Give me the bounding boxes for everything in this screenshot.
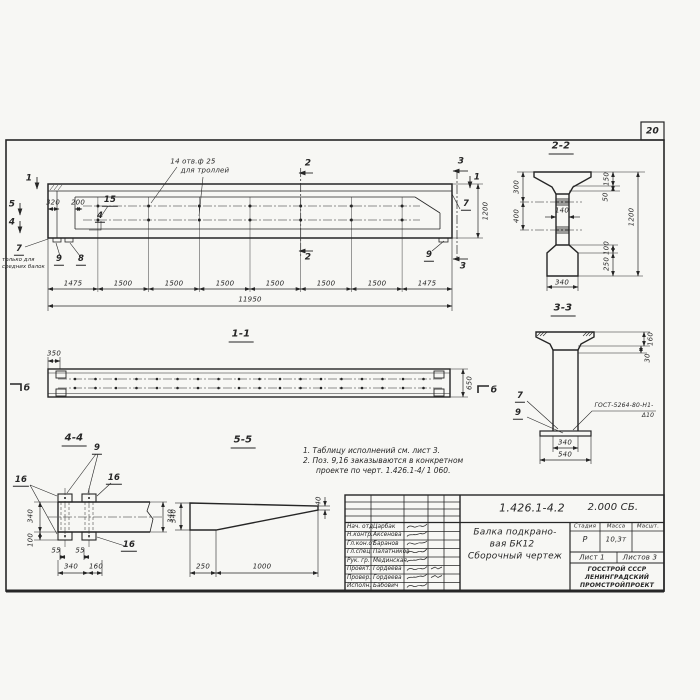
- sheet-value: Лист 1: [579, 554, 605, 561]
- dim-label: 160: [89, 564, 103, 571]
- dim-label: 1000: [253, 564, 272, 571]
- note-line3: проекте по черт. 1.426.1-4/ 1 060.: [316, 466, 450, 476]
- position-label-7: 7: [14, 245, 24, 256]
- dim-label: 55: [51, 548, 60, 555]
- dim-label: 1500: [317, 281, 336, 288]
- dim-label: 100: [28, 533, 35, 547]
- dim-label: 1200: [629, 208, 636, 227]
- column-header-stage: Стадия: [574, 524, 596, 530]
- dim-label: 200: [71, 200, 85, 207]
- dim-label: 50: [603, 192, 610, 201]
- detail-5-5-title: 5-5: [231, 436, 256, 449]
- dim-label: 340: [64, 564, 78, 571]
- dim-label: 55: [75, 548, 84, 555]
- section-mark-2-top: 2: [305, 160, 311, 169]
- note-line1: 1. Таблицу исполнений см. лист 3.: [303, 446, 440, 456]
- column-header-mass: Масса: [607, 524, 626, 530]
- dim-label: 250: [604, 257, 611, 271]
- mass-value: 10,3т: [606, 537, 627, 544]
- dim-label: 400: [514, 209, 521, 223]
- dim-label: 350: [47, 351, 61, 358]
- signature-role: Гл.спец.: [347, 550, 372, 556]
- weld-note-line2: Δ10: [642, 413, 654, 419]
- signature-role: Нач. отд: [347, 525, 373, 531]
- signature-role: Н.контр.: [347, 533, 373, 539]
- signature-name: Палатников: [373, 550, 410, 556]
- position-label-16: 16: [106, 474, 122, 485]
- signature-role: Рук. гр.: [347, 559, 370, 565]
- stage-value: Р: [582, 536, 587, 544]
- doc-number: 1.426.1-4.2: [499, 503, 565, 514]
- holes-note-line1: 14 отв.ф 25: [170, 159, 215, 166]
- position-label-9: 9: [513, 409, 523, 420]
- dim-label: 540: [558, 452, 572, 459]
- dim-label: 1500: [165, 281, 184, 288]
- dim-label: 1475: [64, 281, 83, 288]
- section-1-1-lines: [10, 357, 489, 397]
- view-mark-1-right: 1: [474, 174, 480, 183]
- signature-role: Гл.кон.от: [347, 542, 375, 548]
- signature-name: Гордеева: [373, 567, 402, 573]
- dim-label: 1500: [114, 281, 133, 288]
- section-2-2-title: 2-2: [549, 142, 574, 155]
- section-mark-b-left: б: [24, 385, 30, 394]
- view-mark-1-left: 1: [26, 175, 32, 184]
- note-line2: 2. Поз. 9,16 заказываются в конкретном: [303, 456, 463, 466]
- detail-4-4-lines: [30, 454, 167, 576]
- position-label-9: 9: [54, 255, 64, 266]
- signature-name: Царбак: [373, 525, 395, 531]
- section-3-3-title: 3-3: [551, 304, 576, 317]
- drawing-title-line3: Сборочный чертеж: [468, 553, 562, 562]
- dim-label: 1200: [483, 202, 490, 221]
- dim-label: 40: [316, 496, 323, 505]
- dim-label: 1500: [216, 281, 235, 288]
- org-line3: ПРОМСТРОЙПРОЕКТ: [580, 583, 654, 589]
- dim-label: 100: [604, 241, 611, 255]
- section-mark-b-right: б: [491, 387, 497, 396]
- doc-suffix: 2.000 СБ.: [588, 503, 639, 513]
- dim-label: 250: [196, 564, 210, 571]
- signature-role: Исполн.: [347, 584, 371, 590]
- dim-label: 140: [555, 208, 569, 215]
- position-label-8: 8: [76, 255, 86, 266]
- section-mark-3-top: 3: [458, 158, 464, 167]
- position-label-9: 9: [92, 444, 102, 455]
- section-3-3-lines: [527, 332, 656, 464]
- dim-label: 340: [171, 509, 178, 523]
- org-line2: ЛЕНИНГРАДСКИЙ: [585, 575, 649, 581]
- signature-scribbles: [407, 524, 442, 588]
- dim-label: 340: [555, 280, 569, 287]
- signature-role: Провер.: [347, 576, 371, 582]
- view-mark-4: 4: [9, 219, 15, 228]
- section-2-2-lines: [517, 172, 645, 291]
- org-line1: ГОССТРОЙ СССР: [588, 567, 647, 573]
- dim-label: 300: [514, 180, 521, 194]
- position-label-16: 16: [121, 541, 137, 552]
- dim-label: 650: [467, 376, 474, 390]
- position-label-9: 9: [424, 251, 434, 262]
- column-header-scale: Масшт.: [637, 524, 659, 530]
- signature-name: Мединская: [373, 559, 407, 565]
- detail-4-4-title: 4-4: [62, 434, 87, 447]
- main-view-lines: [20, 167, 483, 311]
- holes-note-line2: для троллей: [181, 168, 230, 175]
- signature-name: Бабович: [373, 584, 398, 590]
- drawing-title-line1: Балка подкрано-: [473, 529, 556, 538]
- dim-label: 150: [604, 172, 611, 186]
- dim-label: 320: [46, 200, 60, 207]
- dim-label: 160: [648, 332, 655, 346]
- position-label-4: 4: [95, 212, 105, 223]
- position-label-16: 16: [13, 476, 29, 487]
- dim-label: 1500: [368, 281, 387, 288]
- signature-role: Проект.: [347, 567, 371, 573]
- position-label-7: 7: [461, 200, 471, 211]
- weld-note-line1: ГОСТ-5264-80-Н1-: [594, 403, 653, 409]
- dim-label: 340: [28, 509, 35, 523]
- signature-name: Гордеева: [373, 576, 402, 582]
- sheets-value: Листов 3: [623, 554, 657, 561]
- view-mark-5: 5: [9, 201, 15, 210]
- drawing-title-line2: вая БК12: [490, 541, 535, 550]
- only-note-line2: средних балок: [2, 264, 45, 271]
- dim-label-total: 11950: [238, 297, 261, 304]
- dim-label: 1500: [266, 281, 285, 288]
- signature-name: Баранов: [373, 542, 399, 548]
- dim-label: 30: [645, 353, 652, 362]
- section-mark-2-bottom: 2: [305, 254, 311, 263]
- drawing-linework: [0, 0, 700, 700]
- sheet-number: 20: [646, 127, 659, 136]
- dim-label: 1475: [418, 281, 437, 288]
- section-1-1-title: 1-1: [229, 330, 254, 343]
- section-mark-3-bottom: 3: [460, 263, 466, 272]
- signature-name: Аксенова: [373, 533, 402, 539]
- sheet-frame: [6, 122, 664, 591]
- dim-label: 340: [558, 440, 572, 447]
- drawing-sheet: 20 14 отв.ф 25 для троллей 1 5 4 1 2 2 3…: [0, 0, 700, 700]
- position-label-15: 15: [102, 196, 118, 207]
- position-label-7: 7: [515, 392, 525, 403]
